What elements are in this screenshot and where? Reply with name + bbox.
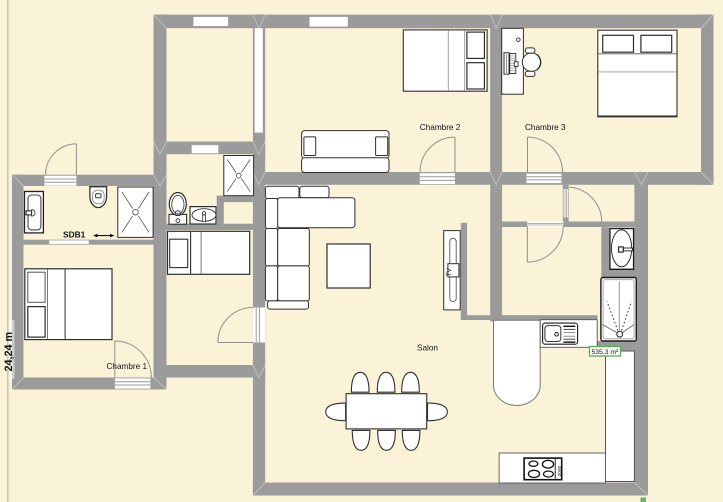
- svg-text:3000: 3000: [557, 465, 563, 476]
- svg-text:24,24 m: 24,24 m: [3, 332, 15, 372]
- svg-text:Chambre 1: Chambre 1: [107, 362, 148, 371]
- svg-text:SDB1: SDB1: [63, 230, 86, 240]
- svg-text:Chambre 2: Chambre 2: [420, 123, 461, 132]
- svg-text:TV: TV: [446, 268, 453, 277]
- svg-text:Chambre 3: Chambre 3: [525, 123, 566, 132]
- svg-text:535,3 m²: 535,3 m²: [592, 349, 620, 356]
- svg-text:Salon: Salon: [417, 343, 438, 352]
